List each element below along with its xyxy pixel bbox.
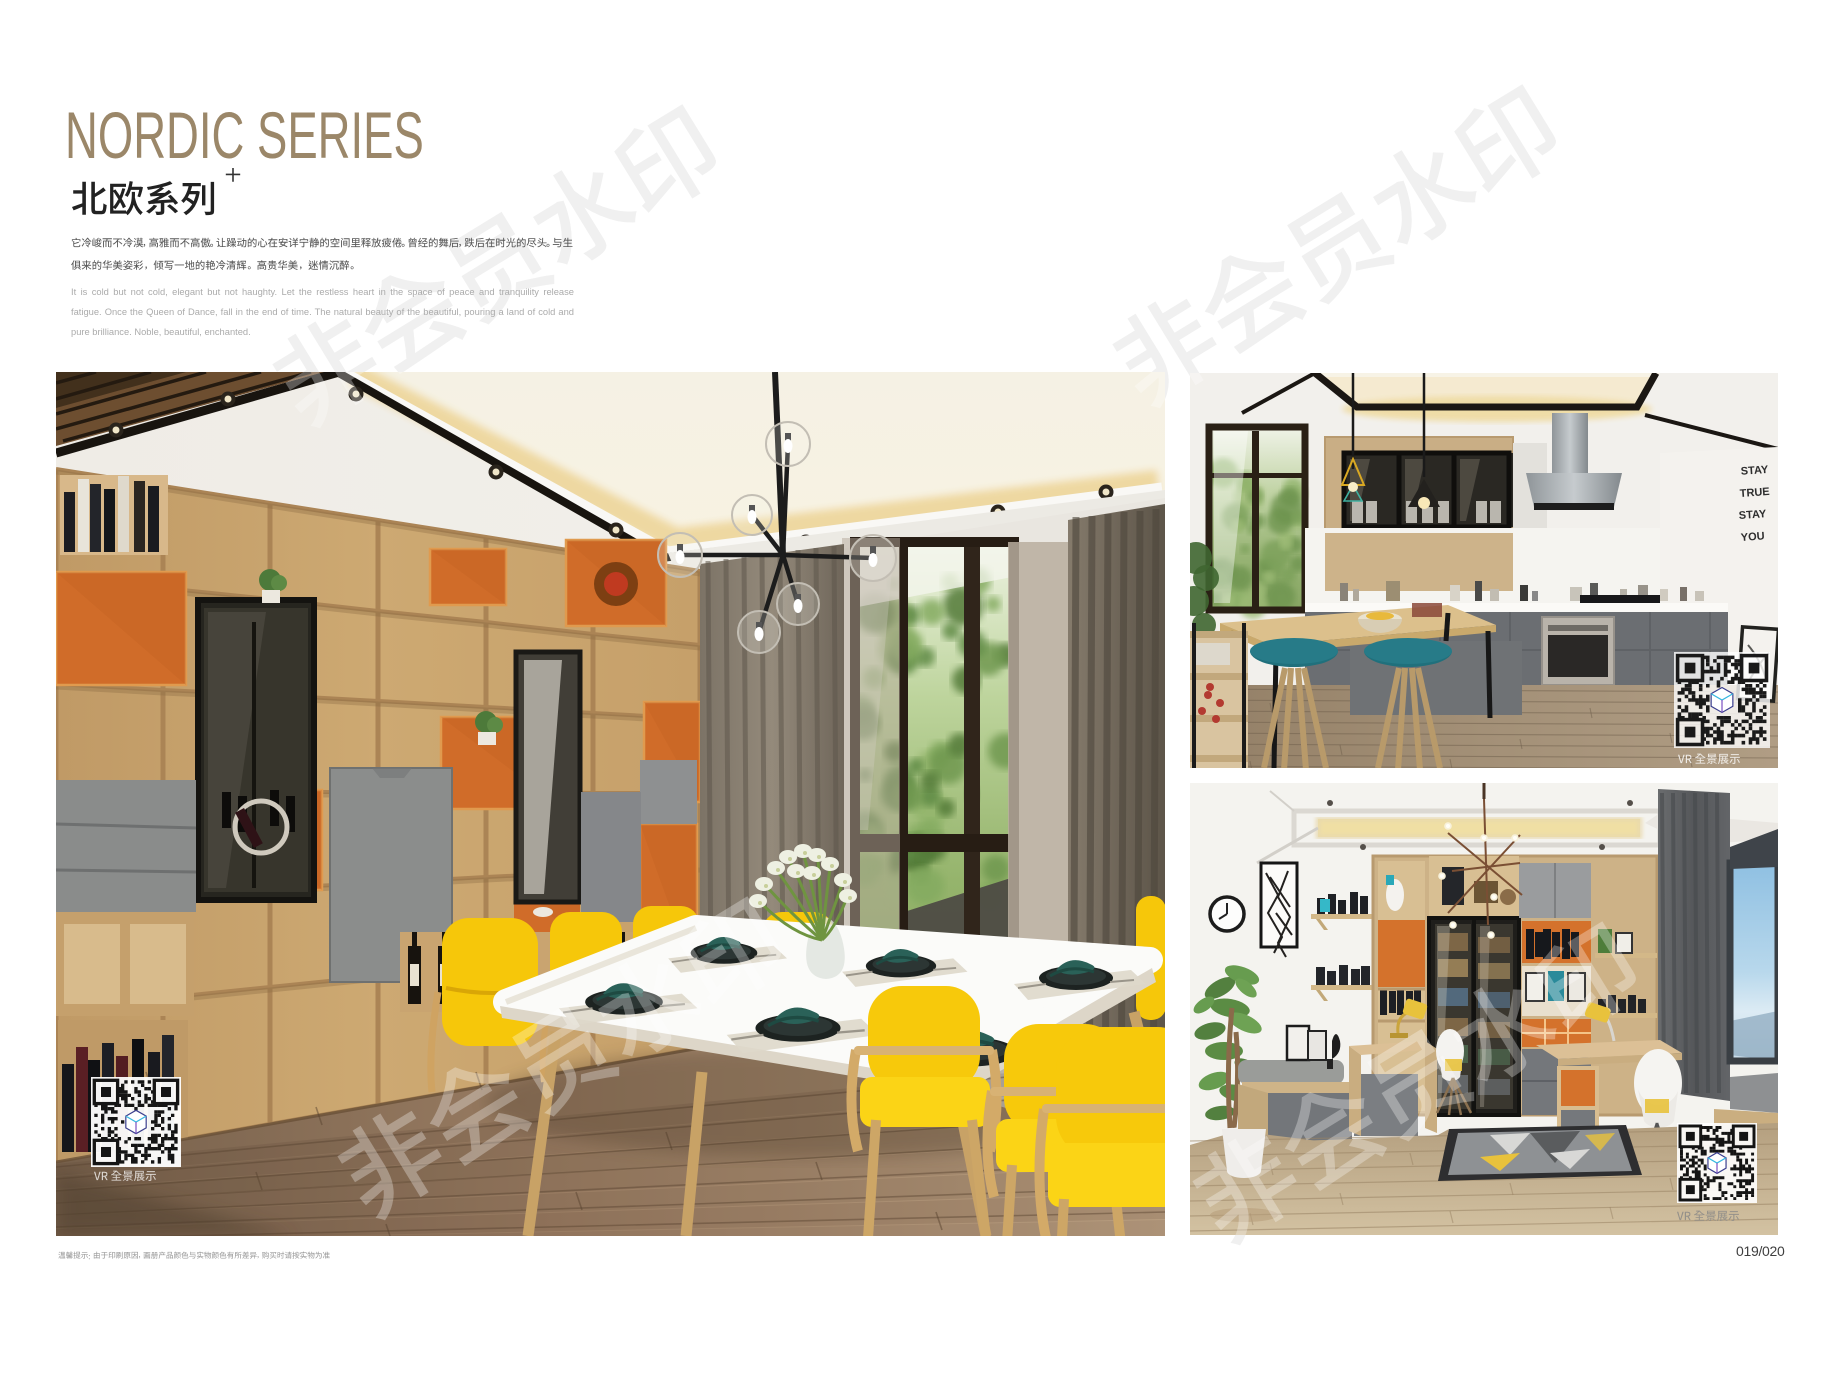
- svg-text:TRUE: TRUE: [1739, 486, 1770, 500]
- svg-text:STAY: STAY: [1738, 508, 1767, 522]
- svg-text:STAY: STAY: [1740, 464, 1769, 478]
- svg-text:YOU: YOU: [1740, 530, 1765, 544]
